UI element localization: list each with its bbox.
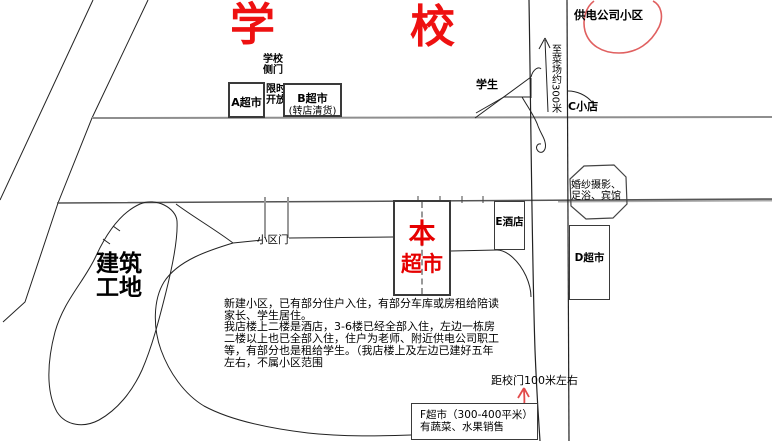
supermarket-b-box: B超市 (转店清货) xyxy=(283,83,342,117)
supermarket-a-label: A超市 xyxy=(230,94,263,110)
crossing-squiggle xyxy=(522,97,545,152)
supermarket-a-box: A超市 xyxy=(228,82,265,118)
community-gate-label: 小区门 xyxy=(257,235,289,246)
construction-site-outline xyxy=(49,202,177,425)
students-label: 学生 xyxy=(476,79,498,91)
f-supermarket-label: F超市（300-400平米） 有蔬菜、水果销售 xyxy=(420,410,533,433)
horizontal-road-1 xyxy=(92,117,772,118)
d-supermarket-label: D超市 xyxy=(570,250,609,265)
our-supermarket-box: 本 超市 xyxy=(393,200,451,296)
school-side-gate-label: 学校 侧门 xyxy=(263,55,283,76)
construction-site-label: 建筑 工地 xyxy=(96,252,142,300)
community-note-paragraph: 新建小区，已有部分住户入住，有部分车库或房租给陪读 家长、学生居住。 我店楼上二… xyxy=(224,298,596,368)
wedding-block-label: 婚纱摄影、 足浴、宾馆 xyxy=(571,180,621,202)
power-company-area-label: 供电公司小区 xyxy=(574,9,643,21)
community-gate-posts xyxy=(265,197,288,238)
diagonal-road-1 xyxy=(0,0,93,200)
our-supermarket-label-line2: 超市 xyxy=(395,248,449,278)
e-hotel-box: E酒店 xyxy=(494,201,525,250)
supermarket-b-note: (转店清货) xyxy=(285,102,340,117)
distance-to-gate-label: 距校门100米左右 xyxy=(491,375,578,387)
school-title-right: 校 xyxy=(410,3,455,50)
d-supermarket-box: D超市 xyxy=(569,225,610,300)
e-hotel-label: E酒店 xyxy=(495,214,524,229)
f-supermarket-box: F超市（300-400平米） 有蔬菜、水果销售 xyxy=(411,403,538,440)
students-crossing-hook xyxy=(531,68,541,77)
c-shop-label: C小店 xyxy=(568,101,598,113)
school-title-left: 学 xyxy=(230,1,275,48)
community-boundary-west xyxy=(176,204,233,243)
hand-drawn-map-canvas: 学 校 供电公司小区 学校 侧门 A超市 限时 开放 B超市 (转店清货) 学生… xyxy=(0,0,772,441)
to-market-vertical-label: 至菜场约300米 xyxy=(549,44,560,113)
community-boundary-east-curve xyxy=(451,250,531,297)
sketch-layer xyxy=(0,0,772,441)
our-supermarket-label-line1: 本 xyxy=(395,212,449,251)
